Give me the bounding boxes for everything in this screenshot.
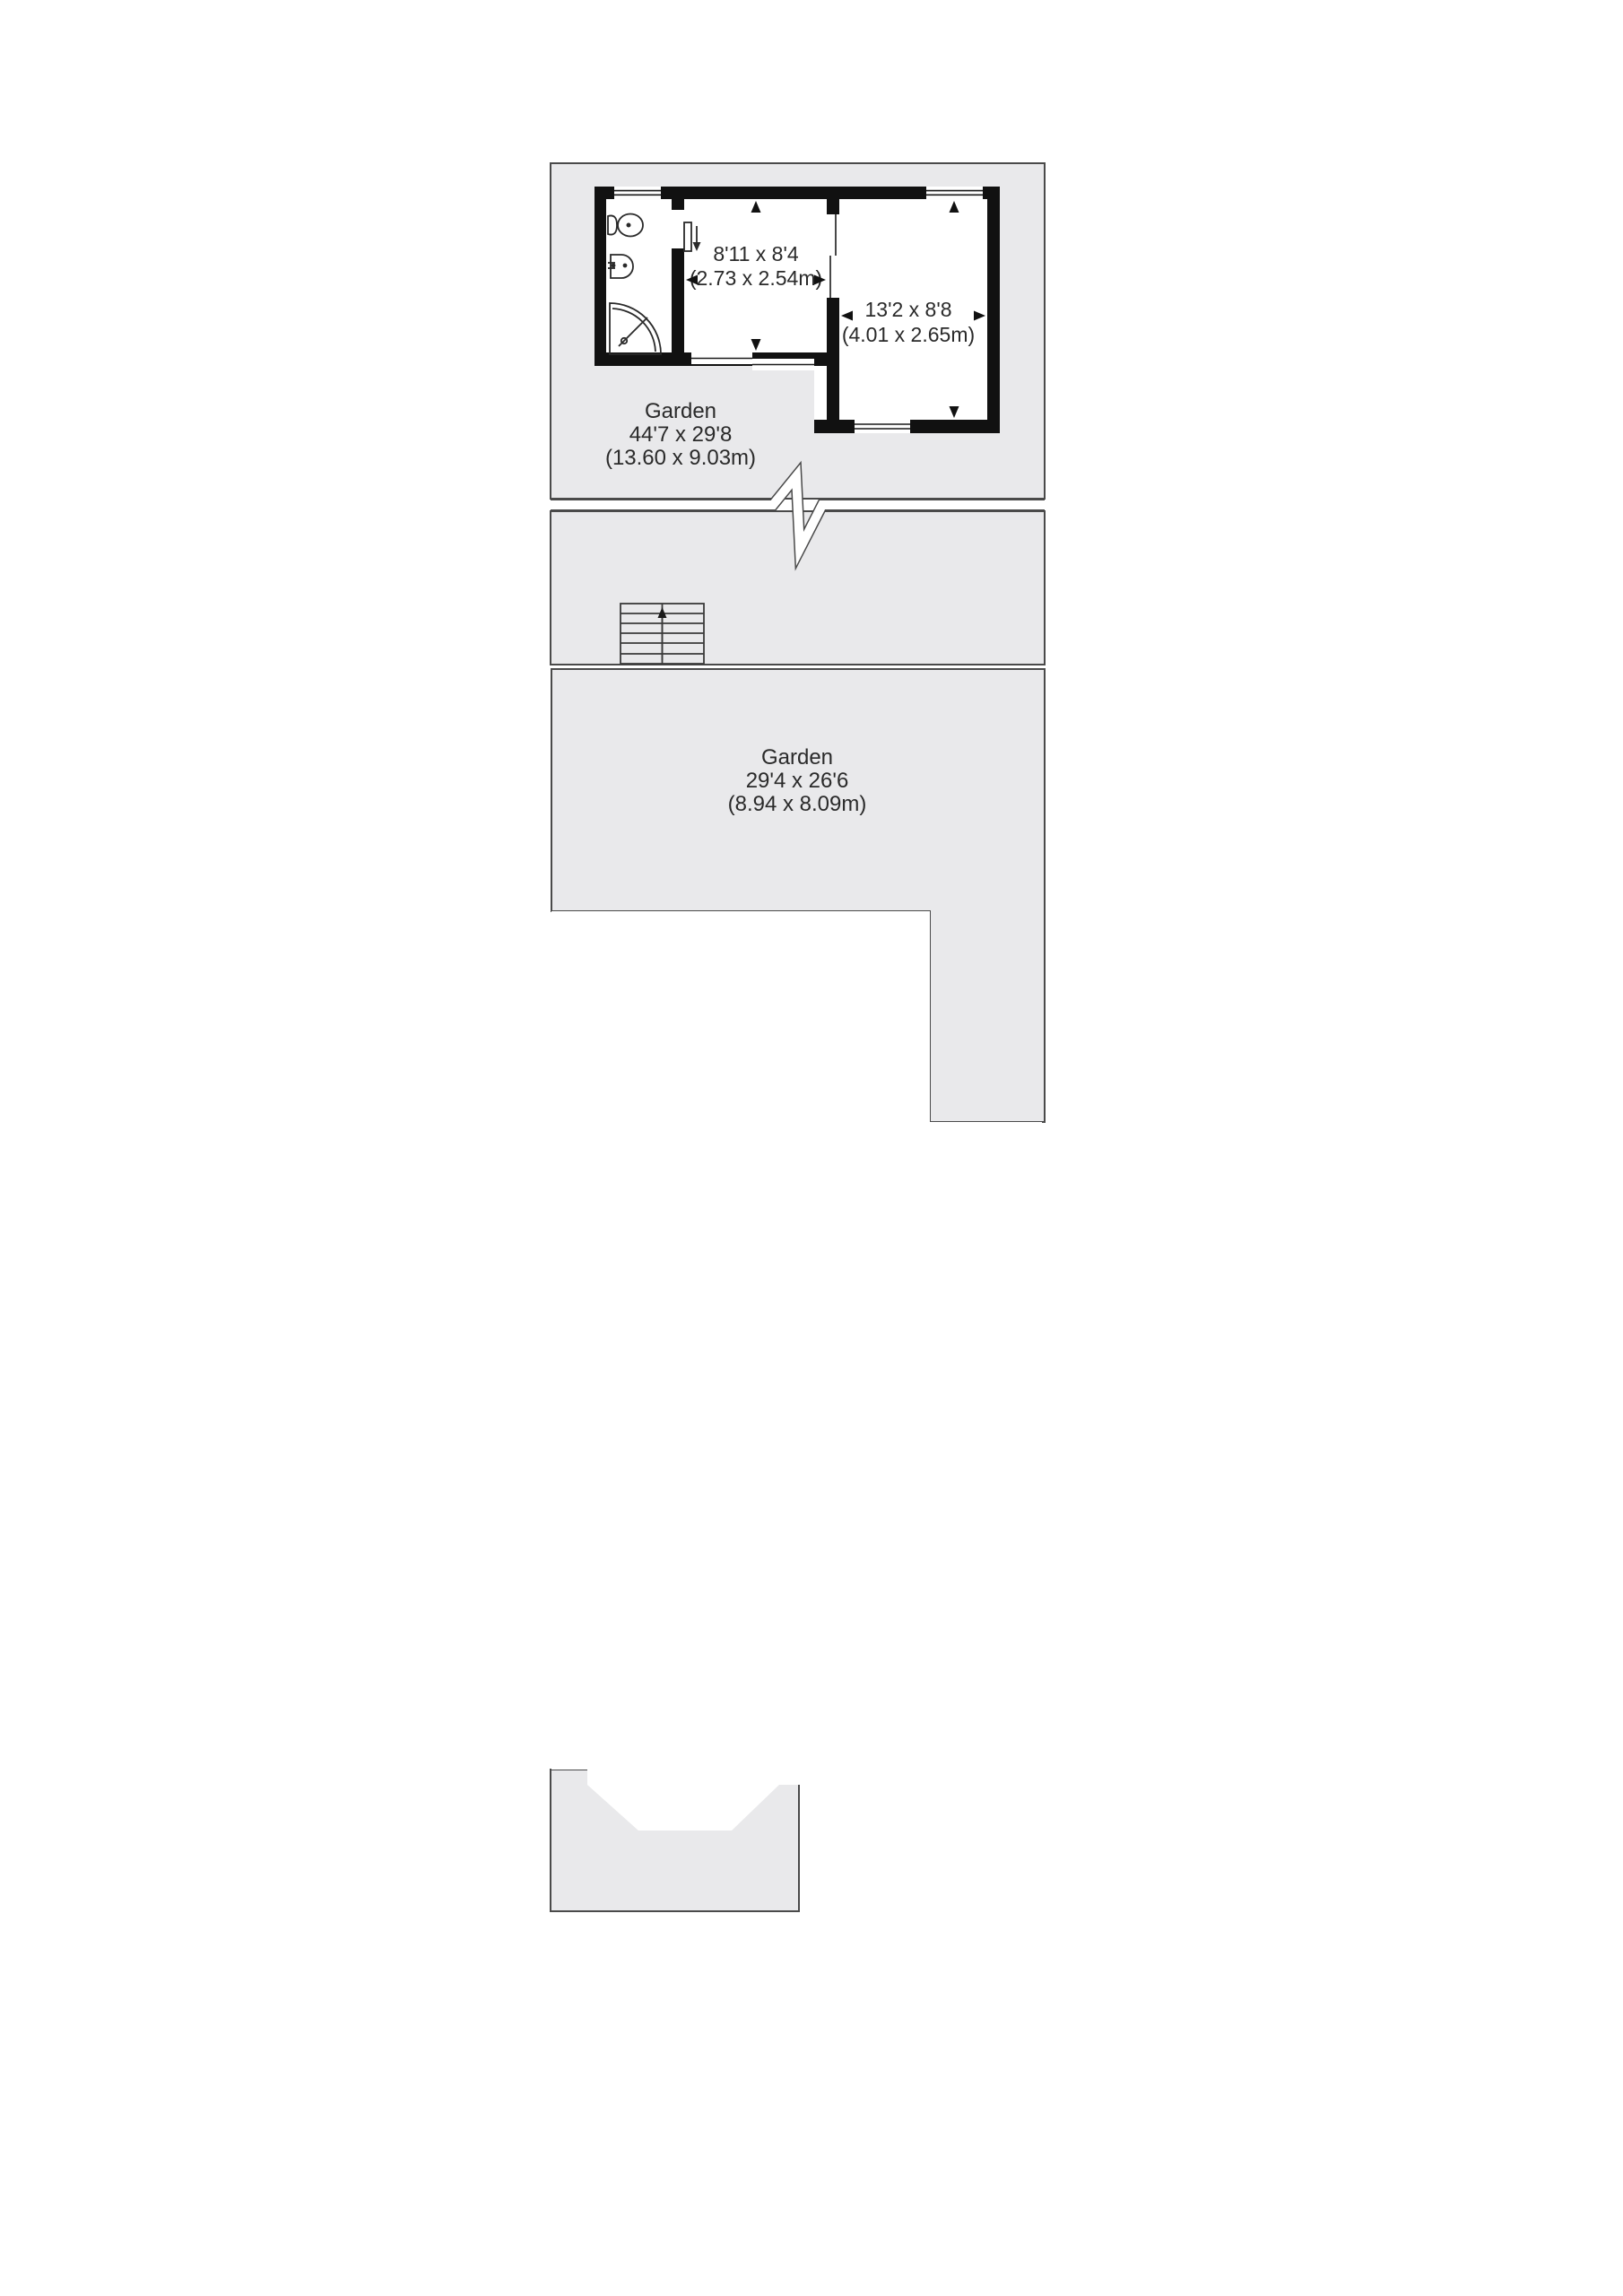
svg-text:8'11 x 8'4: 8'11 x 8'4 <box>713 242 799 265</box>
svg-text:(13.60 x 9.03m): (13.60 x 9.03m) <box>605 446 756 470</box>
svg-text:29'4 x 26'6: 29'4 x 26'6 <box>746 769 849 793</box>
svg-text:(4.01 x 2.65m): (4.01 x 2.65m) <box>842 323 975 346</box>
svg-text:Garden: Garden <box>761 745 833 770</box>
svg-text:Garden: Garden <box>645 399 716 423</box>
svg-text:(8.94 x 8.09m): (8.94 x 8.09m) <box>728 792 867 816</box>
svg-text:(2.73 x 2.54m): (2.73 x 2.54m) <box>690 266 822 290</box>
svg-text:44'7 x 29'8: 44'7 x 29'8 <box>629 422 733 447</box>
svg-text:13'2 x 8'8: 13'2 x 8'8 <box>864 298 951 321</box>
